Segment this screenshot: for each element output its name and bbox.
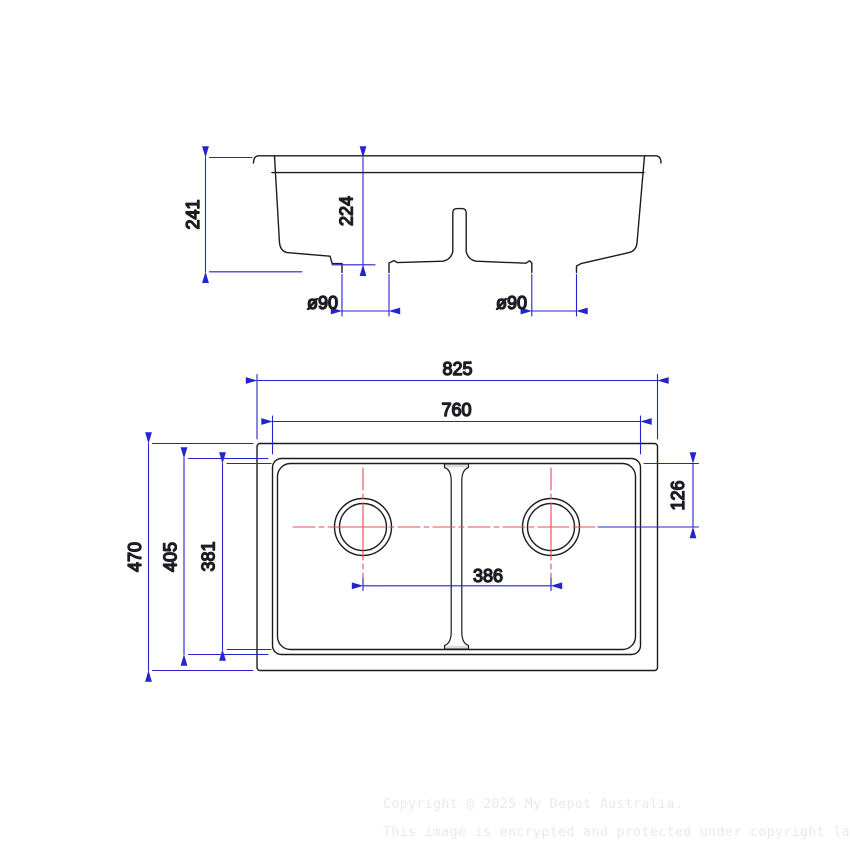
sink-outer-rect: [257, 444, 658, 671]
sink-rim-profile: [254, 156, 662, 163]
dim-bowl-depth-label: 224: [337, 196, 357, 226]
centerlines: [293, 468, 620, 589]
sink-body-profile: [275, 156, 645, 273]
bowl-divider: [445, 464, 469, 649]
dim-overall-height-label: 241: [183, 199, 203, 229]
watermark-line-1: Copyright @ 2025 My Depot Australia.: [383, 797, 683, 812]
dim-overall-depth-label: 470: [125, 542, 145, 572]
dim-left-drain: [342, 275, 389, 317]
watermark-line-2: This image is encrypted and protected un…: [383, 825, 850, 840]
technical-drawing-page: 241 224 ø90 ø90: [0, 0, 850, 850]
bowl-rim-inner: [278, 464, 636, 650]
dim-bowl-inner-depth: [223, 464, 272, 650]
dim-bowl-outer-depth-label: 405: [161, 542, 181, 572]
dim-bowl-outer-depth: [184, 459, 268, 655]
dim-bowl-width-label: 760: [441, 400, 471, 420]
watermark: Copyright @ 2025 My Depot Australia. Thi…: [383, 797, 850, 840]
dim-drain-spacing: [363, 578, 551, 591]
dim-bowl-width: [273, 416, 641, 454]
dim-overall-width-label: 825: [442, 359, 472, 379]
dim-drain-offset-label: 126: [668, 480, 688, 510]
dim-left-drain-label: ø90: [307, 293, 338, 313]
technical-drawing-canvas: 241 224 ø90 ø90: [0, 0, 850, 850]
plan-view: 825 760 470 405 381: [125, 359, 699, 671]
dim-bowl-inner-depth-label: 381: [199, 541, 219, 571]
dim-right-drain: [532, 275, 577, 317]
dim-drain-spacing-label: 386: [473, 566, 503, 586]
bowl-rim-outer: [273, 459, 641, 655]
dim-overall-height: [206, 158, 303, 272]
dim-right-drain-label: ø90: [496, 293, 527, 313]
elevation-view: 241 224 ø90 ø90: [183, 156, 661, 316]
